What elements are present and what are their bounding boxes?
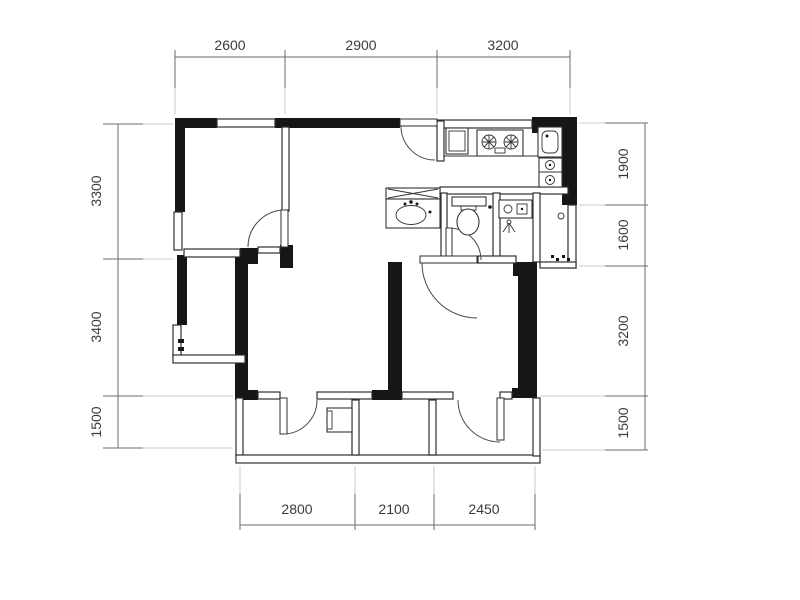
partition-wall bbox=[440, 187, 568, 194]
door-balcony-right bbox=[458, 398, 504, 442]
bathroom-fixtures bbox=[386, 188, 570, 261]
dimension-left: 3300 3400 1500 bbox=[88, 124, 233, 448]
extension-lines bbox=[240, 466, 535, 494]
balcony-window bbox=[236, 455, 540, 463]
double-basin-sink-icon bbox=[539, 158, 562, 187]
dim-value: 2450 bbox=[468, 501, 499, 517]
dim-value: 1900 bbox=[615, 148, 631, 179]
door-swing-arc bbox=[458, 400, 500, 442]
balcony-rail bbox=[173, 355, 245, 363]
extension-lines bbox=[143, 124, 233, 448]
gas-stove-two-burner-icon bbox=[477, 130, 523, 156]
washing-machine-icon bbox=[499, 200, 532, 218]
dim-value: 3200 bbox=[615, 315, 631, 346]
dim-value: 2900 bbox=[345, 37, 376, 53]
door-balcony-left bbox=[280, 398, 317, 434]
partition-wall bbox=[478, 256, 516, 263]
door-bedroom1 bbox=[248, 210, 288, 247]
balcony-window bbox=[236, 398, 243, 456]
dim-value: 3300 bbox=[88, 175, 104, 206]
mirror-cabinet-x-icon bbox=[386, 188, 440, 199]
floor-plan-canvas: 2600 2900 3200 2800 2100 2450 3300 3400 … bbox=[0, 0, 800, 600]
door-kitchen bbox=[400, 119, 437, 160]
door-leaf bbox=[281, 210, 288, 247]
dim-value: 1500 bbox=[615, 407, 631, 438]
door-leaf bbox=[420, 256, 477, 263]
floor-drain-icon bbox=[503, 220, 515, 233]
door-knob-icon bbox=[558, 213, 564, 219]
water-heater-unit-icon bbox=[327, 408, 352, 432]
dim-value: 1500 bbox=[88, 406, 104, 437]
dimension-bottom: 2800 2100 2450 bbox=[240, 466, 535, 530]
door-swing-arc bbox=[248, 210, 285, 247]
partition-wall bbox=[540, 262, 576, 268]
balcony-fixtures bbox=[178, 339, 352, 432]
dim-value: 3200 bbox=[487, 37, 518, 53]
kitchen-sink-icon bbox=[538, 127, 562, 157]
extension-lines bbox=[175, 88, 570, 114]
window bbox=[184, 249, 240, 257]
door-leaf bbox=[497, 398, 504, 440]
partition-wall bbox=[437, 121, 444, 161]
kitchen-fixtures bbox=[444, 127, 562, 187]
dim-value: 1600 bbox=[615, 219, 631, 250]
window bbox=[217, 119, 275, 127]
door-leaf bbox=[280, 398, 287, 434]
dimension-top: 2600 2900 3200 bbox=[175, 37, 570, 114]
dim-value: 3400 bbox=[88, 311, 104, 342]
balcony-window bbox=[533, 398, 540, 456]
dim-value: 2100 bbox=[378, 501, 409, 517]
fridge-icon bbox=[446, 128, 468, 154]
door-swing-arc bbox=[422, 263, 477, 318]
windows-and-partitions bbox=[173, 119, 576, 463]
door-bedroom2 bbox=[420, 256, 477, 318]
window bbox=[258, 392, 280, 399]
dim-value: 2600 bbox=[214, 37, 245, 53]
balcony-partition bbox=[429, 400, 436, 455]
dim-value: 2800 bbox=[281, 501, 312, 517]
partition-wall bbox=[533, 193, 540, 262]
dim-line bbox=[175, 50, 570, 88]
window bbox=[174, 212, 182, 250]
vanity-washbasin-icon bbox=[386, 199, 440, 228]
window bbox=[402, 392, 453, 399]
balcony-partition bbox=[352, 400, 359, 455]
dim-line bbox=[103, 124, 143, 448]
window bbox=[317, 392, 372, 399]
door-swing-arc bbox=[401, 126, 435, 160]
partition-wall bbox=[282, 127, 289, 211]
window bbox=[437, 120, 532, 128]
partition-wall bbox=[258, 247, 280, 253]
threshold-marks-icon bbox=[551, 255, 570, 261]
floor-plan-page: 2600 2900 3200 2800 2100 2450 3300 3400 … bbox=[0, 0, 800, 600]
door-swing-arc bbox=[283, 400, 317, 434]
door-leaf bbox=[400, 119, 437, 126]
